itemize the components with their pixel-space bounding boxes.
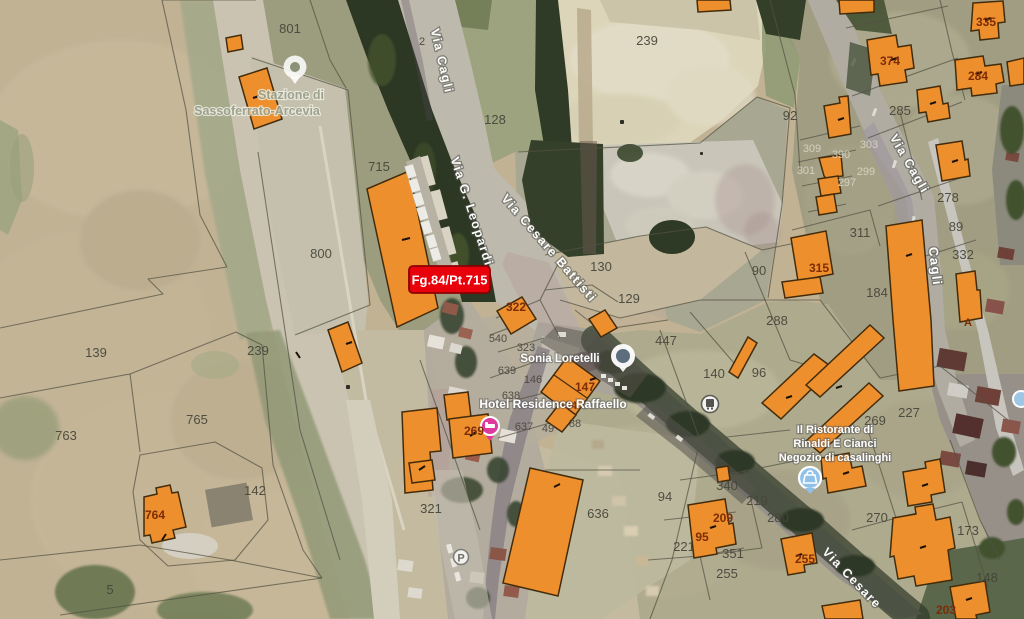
svg-text:94: 94 — [658, 489, 672, 504]
svg-text:49: 49 — [542, 423, 554, 435]
svg-text:765: 765 — [186, 412, 208, 427]
svg-text:335: 335 — [976, 15, 996, 29]
svg-text:239: 239 — [636, 33, 658, 48]
svg-text:Stazione di: Stazione di — [258, 88, 324, 102]
svg-text:715: 715 — [368, 159, 390, 174]
svg-text:239: 239 — [247, 343, 269, 358]
svg-text:88: 88 — [569, 418, 581, 430]
svg-text:309: 309 — [803, 143, 821, 155]
svg-text:637: 637 — [515, 421, 533, 433]
svg-text:374: 374 — [880, 54, 900, 68]
svg-text:184: 184 — [866, 285, 888, 300]
svg-text:139: 139 — [85, 345, 107, 360]
svg-text:219: 219 — [746, 493, 768, 508]
svg-text:P: P — [457, 553, 464, 565]
svg-text:278: 278 — [937, 190, 959, 205]
svg-text:95: 95 — [695, 530, 709, 544]
svg-text:129: 129 — [618, 291, 640, 306]
svg-text:321: 321 — [420, 501, 442, 516]
svg-text:270: 270 — [866, 510, 888, 525]
svg-text:148: 148 — [976, 570, 998, 585]
svg-text:Hotel Residence Raffaello: Hotel Residence Raffaello — [479, 397, 626, 411]
svg-text:322: 322 — [506, 300, 526, 314]
svg-text:280: 280 — [767, 510, 789, 525]
svg-text:Sassoferrato-Arcevia: Sassoferrato-Arcevia — [194, 104, 321, 118]
svg-text:285: 285 — [889, 103, 911, 118]
svg-text:142: 142 — [244, 483, 266, 498]
svg-text:636: 636 — [587, 506, 609, 521]
svg-text:2: 2 — [419, 36, 425, 48]
svg-text:Il Ristorante di: Il Ristorante di — [797, 424, 873, 436]
svg-text:764: 764 — [145, 508, 165, 522]
svg-text:146: 146 — [524, 374, 542, 386]
svg-text:173: 173 — [957, 523, 979, 538]
svg-text:128: 128 — [484, 112, 506, 127]
svg-text:Negozio di casalinghi: Negozio di casalinghi — [779, 452, 891, 464]
svg-text:147: 147 — [575, 380, 595, 394]
svg-text:90: 90 — [752, 263, 766, 278]
svg-text:390: 390 — [832, 149, 850, 161]
svg-text:801: 801 — [279, 21, 301, 36]
svg-text:311: 311 — [850, 225, 871, 240]
svg-text:297: 297 — [838, 177, 856, 189]
svg-text:540: 540 — [489, 333, 507, 345]
svg-text:288: 288 — [766, 313, 788, 328]
svg-text:639: 639 — [498, 365, 516, 377]
svg-text:351: 351 — [722, 546, 744, 561]
svg-text:A: A — [964, 317, 972, 329]
svg-text:332: 332 — [952, 247, 974, 262]
svg-text:130: 130 — [590, 259, 612, 274]
svg-text:301: 301 — [797, 165, 815, 177]
svg-text:96: 96 — [752, 365, 766, 380]
svg-text:255: 255 — [716, 566, 738, 581]
svg-text:5: 5 — [106, 582, 113, 597]
svg-text:800: 800 — [310, 246, 332, 261]
svg-text:92: 92 — [783, 108, 797, 123]
svg-text:284: 284 — [968, 69, 988, 83]
svg-text:203: 203 — [936, 603, 956, 617]
svg-text:209: 209 — [713, 511, 733, 525]
svg-text:221: 221 — [673, 539, 695, 554]
svg-text:227: 227 — [898, 405, 920, 420]
svg-text:340: 340 — [716, 478, 738, 493]
svg-text:763: 763 — [55, 428, 77, 443]
svg-text:Sonia Loretelli: Sonia Loretelli — [520, 353, 599, 365]
svg-text:Fg.84/Pt.715: Fg.84/Pt.715 — [412, 273, 488, 288]
svg-text:Rinaldi E Cianci: Rinaldi E Cianci — [793, 438, 876, 450]
svg-text:140: 140 — [703, 366, 725, 381]
svg-text:303: 303 — [860, 139, 878, 151]
svg-text:269: 269 — [464, 424, 484, 438]
svg-text:255: 255 — [795, 552, 815, 566]
svg-text:89: 89 — [949, 219, 963, 234]
svg-text:315: 315 — [809, 261, 829, 275]
svg-text:447: 447 — [655, 333, 677, 348]
svg-text:299: 299 — [857, 166, 875, 178]
